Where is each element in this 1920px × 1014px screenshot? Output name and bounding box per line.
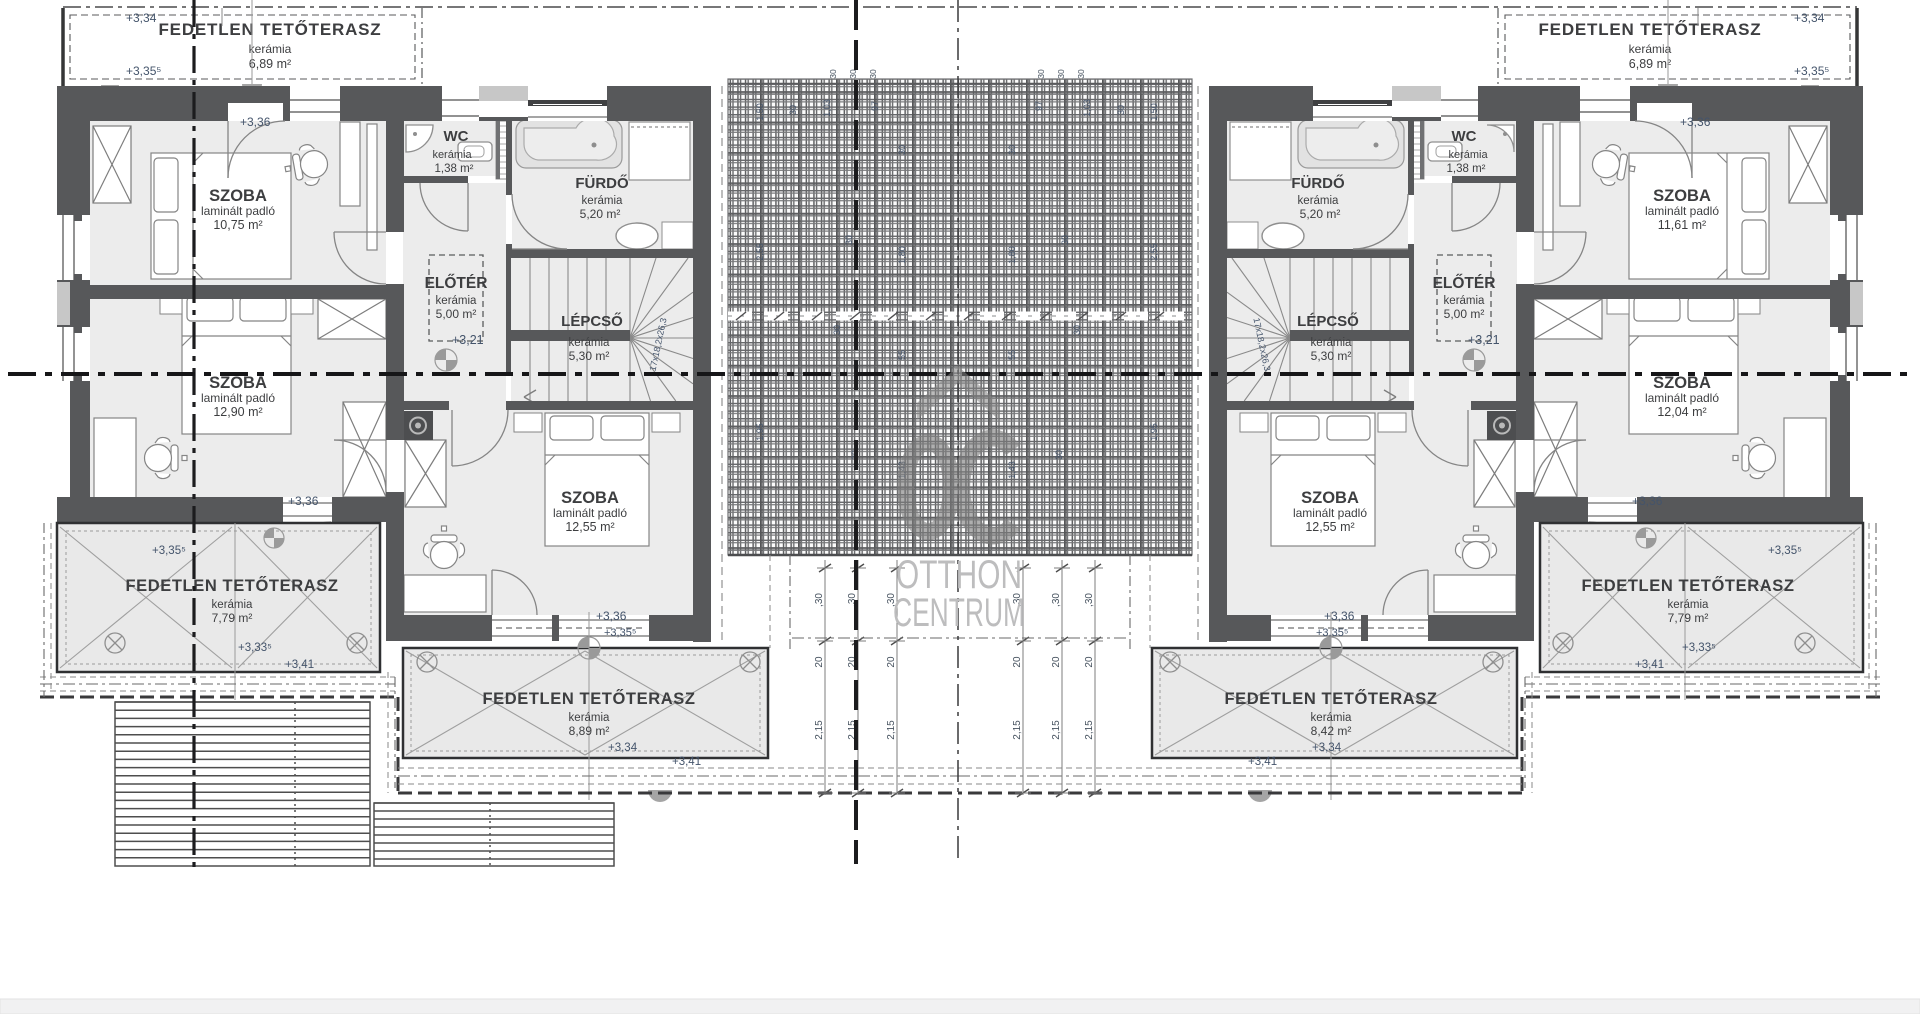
svg-text:kerámia: kerámia <box>1311 712 1353 724</box>
svg-text:1,50: 1,50 <box>1149 103 1159 121</box>
svg-text:SZOBA: SZOBA <box>209 374 267 392</box>
svg-text:30: 30 <box>844 235 854 245</box>
svg-text:55: 55 <box>1007 350 1017 360</box>
svg-text:+3,41: +3,41 <box>1635 659 1664 671</box>
svg-text:kerámia: kerámia <box>1668 599 1710 611</box>
svg-text:kerámia: kerámia <box>582 195 624 207</box>
svg-text:FEDETLEN TETŐTERASZ: FEDETLEN TETŐTERASZ <box>1539 20 1762 39</box>
svg-text:1,03: 1,03 <box>1082 99 1092 117</box>
svg-text:laminált padló: laminált padló <box>1645 391 1719 405</box>
svg-text:2,15: 2,15 <box>814 720 825 740</box>
svg-text:20: 20 <box>1012 656 1023 668</box>
svg-text:20: 20 <box>1051 656 1062 668</box>
svg-text:laminált padló: laminált padló <box>1645 204 1719 218</box>
svg-text:LÉPCSŐ: LÉPCSŐ <box>561 312 623 330</box>
svg-text:WC: WC <box>444 128 469 145</box>
svg-text:12,90 m²: 12,90 m² <box>213 405 262 419</box>
svg-text:5,00 m²: 5,00 m² <box>1444 307 1485 321</box>
svg-text:2,55: 2,55 <box>1149 243 1159 261</box>
svg-text:2,15: 2,15 <box>1084 720 1095 740</box>
svg-text:+3,36: +3,36 <box>596 609 627 623</box>
svg-text:+3,35⁵: +3,35⁵ <box>1794 64 1829 78</box>
svg-text:1,38 m²: 1,38 m² <box>1447 163 1486 175</box>
svg-text:7,79 m²: 7,79 m² <box>212 611 253 625</box>
svg-text:SZOBA: SZOBA <box>1301 489 1359 507</box>
svg-text:+3,33⁵: +3,33⁵ <box>1682 642 1716 654</box>
svg-text:30: 30 <box>848 69 858 79</box>
svg-text:CENTRUM: CENTRUM <box>893 591 1025 635</box>
svg-text:6,89 m²: 6,89 m² <box>1629 57 1671 71</box>
svg-text:+3,34: +3,34 <box>126 11 157 25</box>
svg-text:FEDETLEN TETŐTERASZ: FEDETLEN TETŐTERASZ <box>125 576 338 595</box>
svg-text:1,95: 1,95 <box>1149 423 1159 441</box>
svg-text:FEDETLEN TETŐTERASZ: FEDETLEN TETŐTERASZ <box>1224 689 1437 708</box>
svg-text:kerámia: kerámia <box>1448 149 1488 161</box>
svg-text:30: 30 <box>1060 235 1070 245</box>
svg-text:1,95: 1,95 <box>755 423 765 441</box>
svg-text:30: 30 <box>828 69 838 79</box>
svg-text:,30: ,30 <box>1084 593 1095 607</box>
svg-text:+3,36: +3,36 <box>1680 115 1711 129</box>
svg-text:30: 30 <box>897 145 907 155</box>
svg-text:55: 55 <box>897 350 907 360</box>
svg-text:+3,34: +3,34 <box>1794 11 1825 25</box>
svg-text:SZOBA: SZOBA <box>1653 187 1711 205</box>
svg-text:laminált padló: laminált padló <box>553 506 627 520</box>
svg-text:,30: ,30 <box>1051 593 1062 607</box>
svg-text:5,30 m²: 5,30 m² <box>569 349 610 363</box>
svg-text:30: 30 <box>1116 105 1126 115</box>
svg-text:20: 20 <box>814 656 825 668</box>
svg-text:laminált padló: laminált padló <box>201 391 275 405</box>
svg-text:ELŐTÉR: ELŐTÉR <box>425 274 488 292</box>
svg-text:1,38 m²: 1,38 m² <box>435 163 474 175</box>
svg-text:+3,35⁵: +3,35⁵ <box>1768 545 1802 557</box>
svg-text:kerámia: kerámia <box>569 712 611 724</box>
svg-text:laminált padló: laminált padló <box>1293 506 1367 520</box>
svg-text:8,42 m²: 8,42 m² <box>1311 724 1352 738</box>
svg-text:+3,34: +3,34 <box>1312 742 1342 754</box>
svg-text:LÉPCSŐ: LÉPCSŐ <box>1297 312 1359 330</box>
svg-text:7,79 m²: 7,79 m² <box>1668 611 1709 625</box>
svg-text:6,89 m²: 6,89 m² <box>249 57 291 71</box>
svg-text:30: 30 <box>1076 69 1086 79</box>
svg-text:5,00 m²: 5,00 m² <box>436 307 477 321</box>
svg-text:kerámia: kerámia <box>212 599 254 611</box>
svg-text:kerámia: kerámia <box>1444 295 1486 307</box>
svg-text:FEDETLEN TETŐTERASZ: FEDETLEN TETŐTERASZ <box>1581 576 1794 595</box>
svg-text:1,50: 1,50 <box>755 103 765 121</box>
svg-text:+3,41: +3,41 <box>285 659 314 671</box>
svg-text:+3,35⁵: +3,35⁵ <box>126 64 161 78</box>
svg-text:SZOBA: SZOBA <box>209 187 267 205</box>
svg-text:30: 30 <box>788 105 798 115</box>
svg-text:,30: ,30 <box>814 593 825 607</box>
svg-text:+3,33⁵: +3,33⁵ <box>238 642 272 654</box>
svg-text:+3,36: +3,36 <box>1632 494 1663 508</box>
svg-text:11,61 m²: 11,61 m² <box>1658 218 1706 232</box>
svg-text:+3,36: +3,36 <box>240 115 271 129</box>
svg-text:+3,36: +3,36 <box>288 494 319 508</box>
svg-text:20: 20 <box>1084 656 1095 668</box>
svg-text:30: 30 <box>868 69 878 79</box>
svg-text:SZOBA: SZOBA <box>561 489 619 507</box>
svg-text:+3,41: +3,41 <box>672 756 701 768</box>
svg-text:5,30 m²: 5,30 m² <box>1311 349 1352 363</box>
svg-text:FEDETLEN TETŐTERASZ: FEDETLEN TETŐTERASZ <box>482 689 695 708</box>
svg-text:97: 97 <box>1034 101 1044 111</box>
svg-text:5,20 m²: 5,20 m² <box>1300 207 1341 221</box>
svg-text:5,20 m²: 5,20 m² <box>580 207 621 221</box>
svg-text:12,55 m²: 12,55 m² <box>1305 520 1354 534</box>
svg-text:+3,21: +3,21 <box>1468 333 1500 347</box>
svg-text:+3,41: +3,41 <box>1248 756 1277 768</box>
svg-text:1,03: 1,03 <box>822 99 832 117</box>
svg-text:8,89 m²: 8,89 m² <box>569 724 610 738</box>
svg-text:30: 30 <box>832 325 842 335</box>
svg-text:2,15: 2,15 <box>1051 720 1062 740</box>
svg-text:30: 30 <box>1007 145 1017 155</box>
svg-text:1,80: 1,80 <box>897 246 907 264</box>
svg-text:30: 30 <box>1072 325 1082 335</box>
svg-text:WC: WC <box>1452 128 1477 145</box>
svg-text:ELŐTÉR: ELŐTÉR <box>1433 274 1496 292</box>
svg-text:30: 30 <box>1054 450 1064 460</box>
svg-text:+3,35⁵: +3,35⁵ <box>604 627 636 639</box>
svg-text:12,04 m²: 12,04 m² <box>1657 405 1706 419</box>
svg-text:kerámia: kerámia <box>569 337 611 349</box>
svg-text:+3,35⁵: +3,35⁵ <box>152 545 186 557</box>
svg-text:kerámia: kerámia <box>432 149 472 161</box>
svg-text:2,55: 2,55 <box>755 243 765 261</box>
svg-text:FEDETLEN TETŐTERASZ: FEDETLEN TETŐTERASZ <box>159 20 382 39</box>
svg-text:kerámia: kerámia <box>249 42 292 56</box>
svg-text:kerámia: kerámia <box>436 295 478 307</box>
svg-text:+3,34: +3,34 <box>608 742 638 754</box>
svg-text:kerámia: kerámia <box>1629 42 1672 56</box>
svg-text:+3,21: +3,21 <box>452 333 484 347</box>
svg-text:1,80: 1,80 <box>1007 246 1017 264</box>
svg-text:kerámia: kerámia <box>1298 195 1340 207</box>
svg-text:20: 20 <box>886 656 897 668</box>
svg-text:30: 30 <box>1036 69 1046 79</box>
svg-text:kerámia: kerámia <box>1311 337 1353 349</box>
svg-text:12,55 m²: 12,55 m² <box>565 520 614 534</box>
svg-text:1,43: 1,43 <box>1007 461 1017 479</box>
svg-text:97: 97 <box>870 101 880 111</box>
svg-text:FÜRDŐ: FÜRDŐ <box>575 174 629 192</box>
svg-text:laminált padló: laminált padló <box>201 204 275 218</box>
svg-text:30: 30 <box>1056 69 1066 79</box>
svg-text:2,15: 2,15 <box>1012 720 1023 740</box>
svg-text:+3,36: +3,36 <box>1324 609 1355 623</box>
svg-text:SZOBA: SZOBA <box>1653 374 1711 392</box>
svg-text:FÜRDŐ: FÜRDŐ <box>1291 174 1345 192</box>
svg-text:10,75 m²: 10,75 m² <box>213 218 262 232</box>
svg-text:2,15: 2,15 <box>886 720 897 740</box>
